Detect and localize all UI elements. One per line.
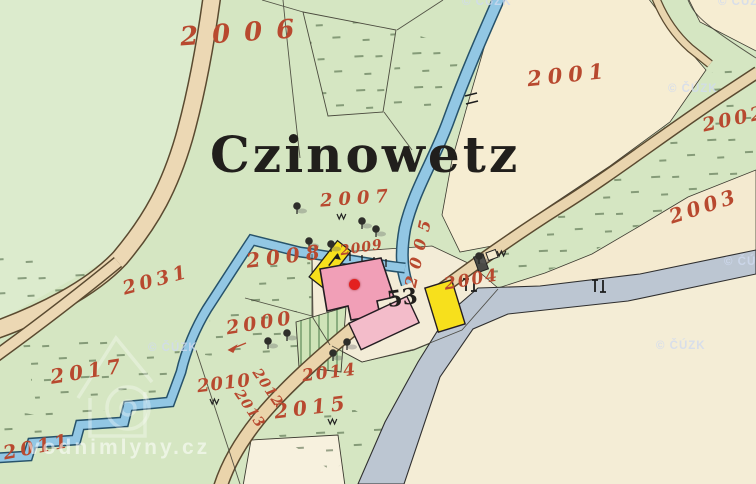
- cuzk-copyright-watermark: © ČÚZK: [462, 0, 512, 8]
- cuzk-copyright-watermark: © ČÚZK: [724, 256, 756, 268]
- cuzk-copyright-watermark: © ČÚZK: [656, 340, 706, 352]
- historic-cadastral-map-canvas[interactable]: Czinowetz 53 2006 2001 2002 2003 2005 20…: [0, 0, 756, 484]
- cuzk-copyright-watermark: © ČÚZK: [668, 83, 718, 95]
- cuzk-copyright-watermark: © ČÚZK: [718, 0, 756, 8]
- site-watermark: vodnimlyny.cz: [28, 436, 210, 460]
- mill-marker-dot[interactable]: [349, 279, 360, 290]
- parcel-label-2007: 2007: [319, 187, 394, 210]
- cuzk-copyright-watermark: © ČÚZK: [148, 342, 198, 354]
- place-name-label: Czinowetz: [210, 130, 520, 180]
- house-number-label: 53: [386, 285, 419, 311]
